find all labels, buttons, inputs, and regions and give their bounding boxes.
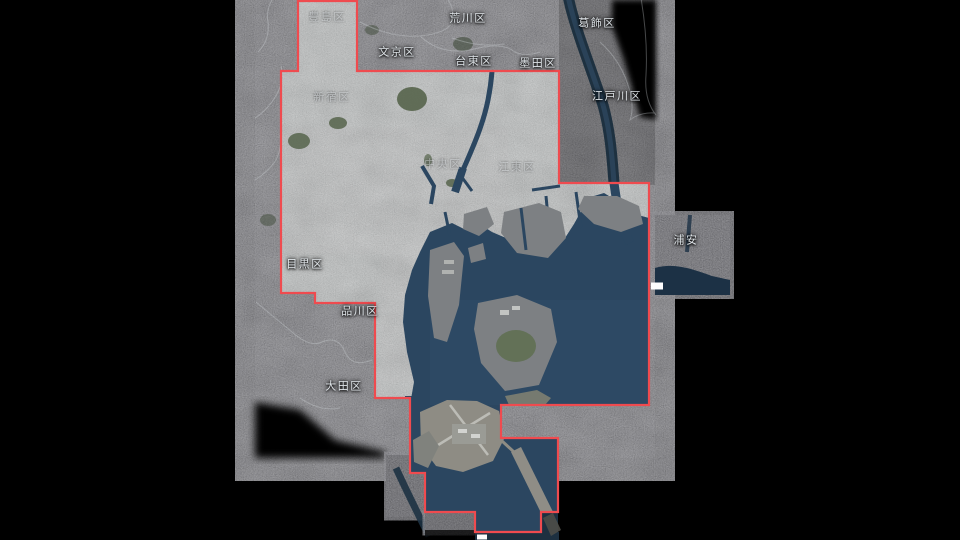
ward-label-urayasu: 浦安 (674, 236, 699, 247)
ward-label-sumida: 墨田区 (519, 59, 557, 70)
ward-label-meguro: 目黒区 (286, 260, 324, 271)
ward-label-arakawa: 荒川区 (449, 14, 487, 25)
satellite-imagery (0, 0, 960, 540)
ward-label-shinagawa: 品川区 (341, 307, 379, 318)
ward-label-taito: 台東区 (455, 57, 493, 68)
satellite-map-canvas[interactable]: 豊島区 荒川区 葛飾区 文京区 台東区 墨田区 江戸川区 新宿区 中央区 江東区… (0, 0, 960, 540)
ward-label-koto: 江東区 (498, 163, 536, 174)
ward-label-chuo: 中央区 (424, 160, 462, 171)
ward-label-toshima: 豊島区 (308, 13, 346, 24)
map-artifact-patch (651, 283, 663, 290)
ward-label-katsushika: 葛飾区 (578, 19, 616, 30)
ward-label-ota: 大田区 (325, 382, 363, 393)
map-artifact-patch (477, 535, 487, 540)
urayasu-tile (655, 215, 730, 295)
ward-label-edogawa: 江戸川区 (592, 92, 642, 103)
ward-label-bunkyo: 文京区 (378, 48, 416, 59)
ward-label-shinjuku: 新宿区 (313, 93, 351, 104)
